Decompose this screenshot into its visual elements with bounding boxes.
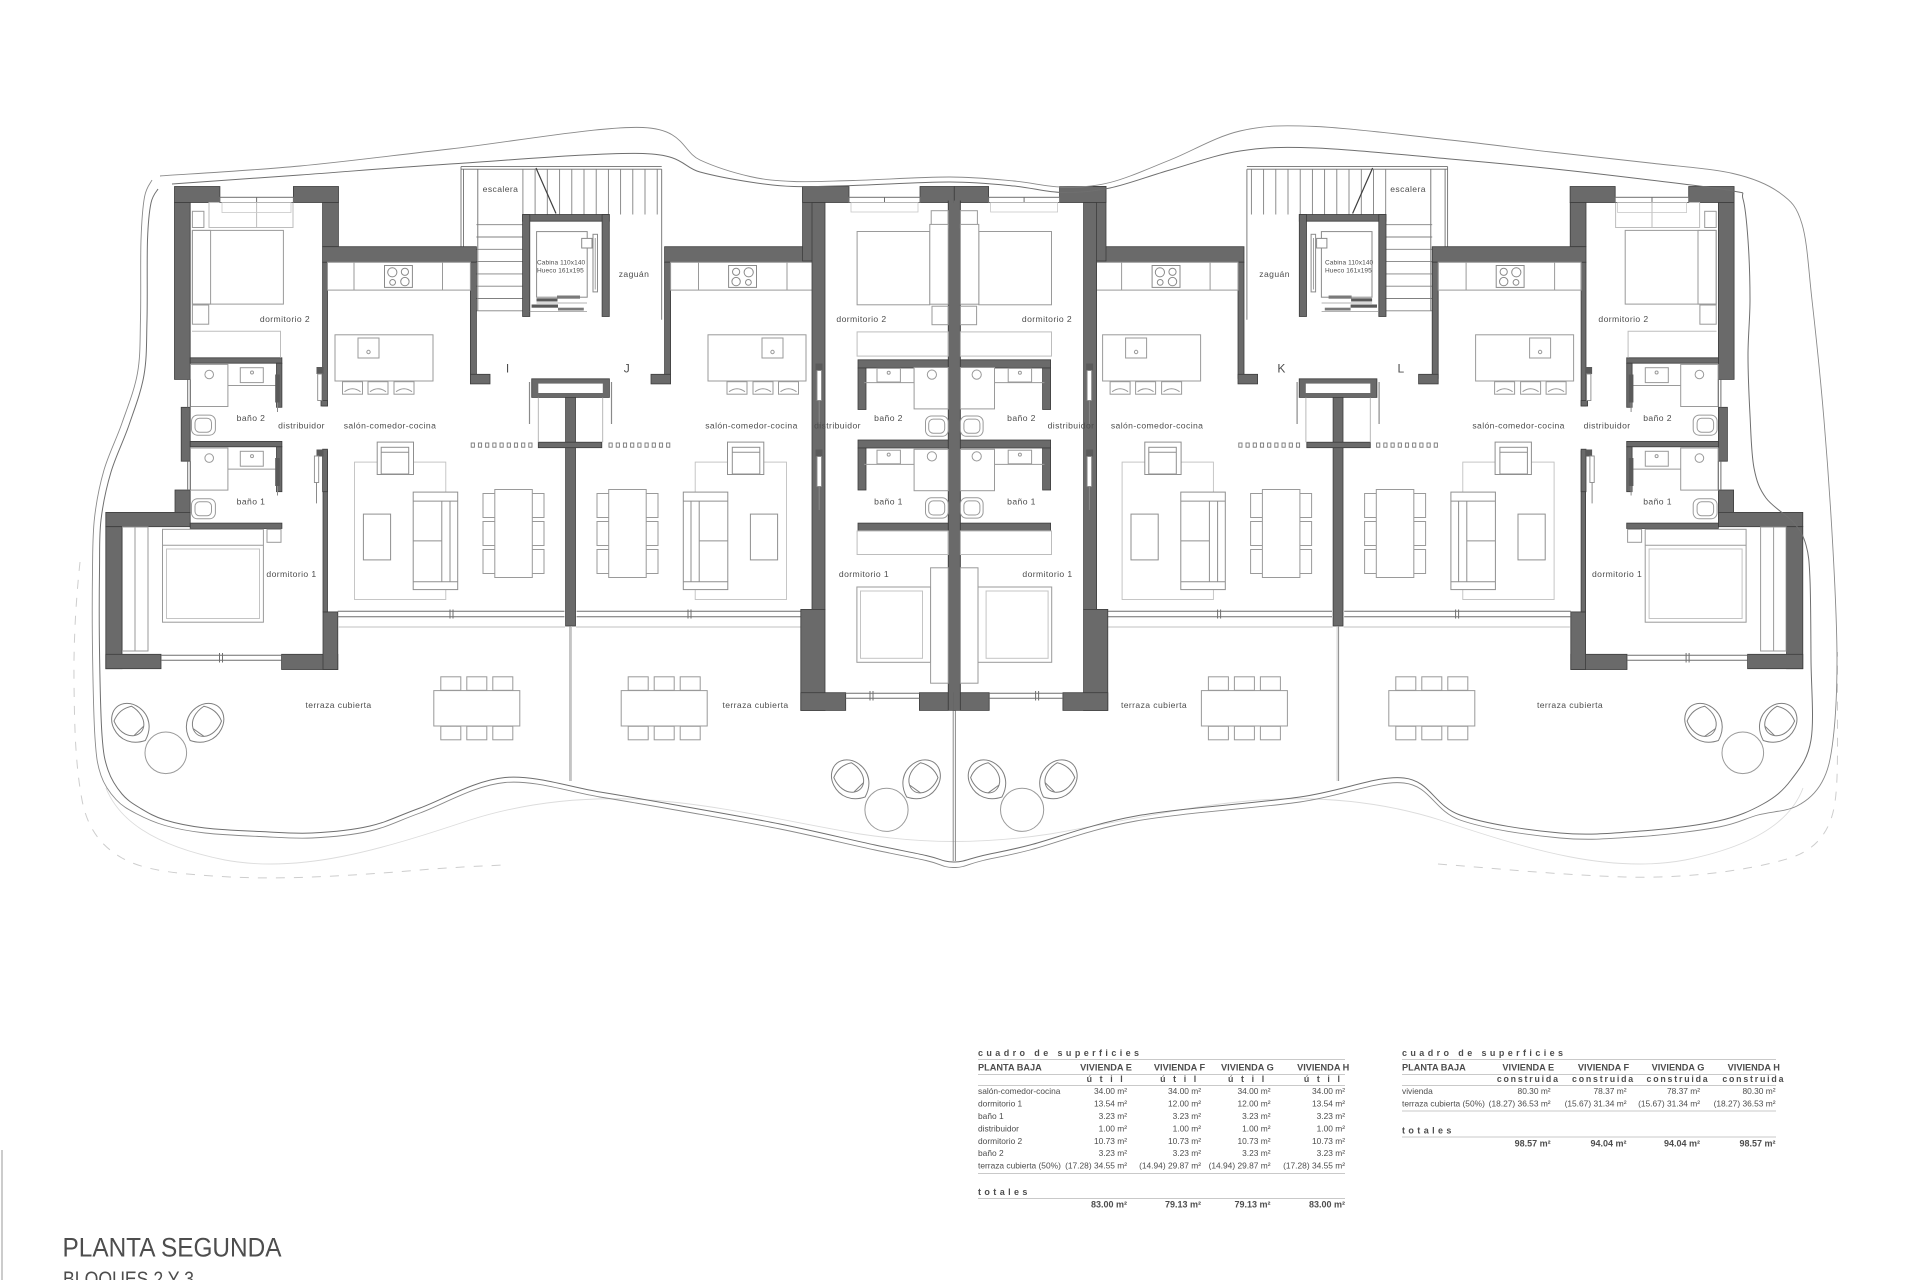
svg-text:10.73 m²: 10.73 m²	[1168, 1136, 1201, 1146]
svg-text:BLOQUES 2 Y 3: BLOQUES 2 Y 3	[63, 1268, 194, 1280]
svg-text:baño 1: baño 1	[237, 497, 266, 507]
svg-text:distribuidor: distribuidor	[814, 421, 861, 431]
svg-text:3.23 m²: 3.23 m²	[1242, 1111, 1271, 1121]
svg-text:zaguán: zaguán	[1259, 269, 1290, 279]
svg-text:escalera: escalera	[1390, 184, 1426, 194]
svg-text:10.73 m²: 10.73 m²	[1094, 1136, 1127, 1146]
svg-text:baño 1: baño 1	[874, 497, 903, 507]
svg-text:dormitorio 2: dormitorio 2	[260, 314, 310, 324]
svg-text:(15.67) 31.34 m²: (15.67) 31.34 m²	[1565, 1098, 1627, 1108]
svg-text:baño 2: baño 2	[978, 1148, 1004, 1158]
svg-text:VIVIENDA F: VIVIENDA F	[1578, 1063, 1630, 1073]
svg-text:terraza cubierta: terraza cubierta	[1121, 700, 1187, 710]
svg-text:34.00 m²: 34.00 m²	[1094, 1086, 1127, 1096]
svg-text:Hueco 161x195: Hueco 161x195	[1325, 268, 1372, 275]
svg-text:ú t i l: ú t i l	[1304, 1074, 1343, 1084]
svg-text:(15.67) 31.34 m²: (15.67) 31.34 m²	[1638, 1098, 1700, 1108]
svg-text:distribuidor: distribuidor	[1048, 421, 1095, 431]
svg-text:(14.94) 29.87 m²: (14.94) 29.87 m²	[1209, 1161, 1271, 1171]
svg-text:80.30 m²: 80.30 m²	[1742, 1086, 1775, 1096]
svg-text:I: I	[506, 362, 510, 376]
svg-text:94.04 m²: 94.04 m²	[1590, 1139, 1626, 1149]
svg-text:94.04 m²: 94.04 m²	[1664, 1139, 1700, 1149]
svg-text:dormitorio 1: dormitorio 1	[978, 1098, 1023, 1108]
svg-text:78.37 m²: 78.37 m²	[1667, 1086, 1700, 1096]
svg-text:3.23 m²: 3.23 m²	[1099, 1111, 1128, 1121]
svg-text:L: L	[1397, 362, 1404, 376]
svg-text:salón-comedor-cocina: salón-comedor-cocina	[344, 421, 437, 431]
svg-text:VIVIENDA E: VIVIENDA E	[1502, 1063, 1554, 1073]
svg-text:baño 1: baño 1	[1007, 497, 1036, 507]
svg-text:ú t i l: ú t i l	[1228, 1074, 1267, 1084]
svg-text:1.00 m²: 1.00 m²	[1173, 1124, 1202, 1134]
svg-text:3.23 m²: 3.23 m²	[1317, 1148, 1346, 1158]
svg-text:construida: construida	[1497, 1074, 1560, 1084]
svg-text:VIVIENDA H: VIVIENDA H	[1728, 1063, 1781, 1073]
svg-text:escalera: escalera	[483, 184, 519, 194]
svg-text:cuadro de superficies: cuadro de superficies	[1402, 1048, 1566, 1058]
svg-text:98.57 m²: 98.57 m²	[1739, 1139, 1775, 1149]
svg-text:VIVIENDA E: VIVIENDA E	[1080, 1063, 1132, 1073]
svg-text:(18.27) 36.53 m²: (18.27) 36.53 m²	[1714, 1098, 1776, 1108]
svg-text:VIVIENDA F: VIVIENDA F	[1154, 1063, 1206, 1073]
svg-text:(17.28) 34.55 m²: (17.28) 34.55 m²	[1065, 1161, 1127, 1171]
svg-text:Cabina 110x140: Cabina 110x140	[537, 260, 586, 267]
svg-text:construida: construida	[1647, 1074, 1710, 1084]
svg-text:13.54 m²: 13.54 m²	[1094, 1098, 1127, 1108]
svg-text:VIVIENDA H: VIVIENDA H	[1297, 1063, 1350, 1073]
svg-text:78.37 m²: 78.37 m²	[1593, 1086, 1626, 1096]
svg-text:terraza cubierta: terraza cubierta	[722, 700, 788, 710]
svg-text:34.00 m²: 34.00 m²	[1168, 1086, 1201, 1096]
svg-text:34.00 m²: 34.00 m²	[1237, 1086, 1270, 1096]
svg-text:ú t i l: ú t i l	[1160, 1074, 1199, 1084]
svg-text:12.00 m²: 12.00 m²	[1168, 1098, 1201, 1108]
svg-text:3.23 m²: 3.23 m²	[1242, 1148, 1271, 1158]
svg-text:terraza cubierta (50%): terraza cubierta (50%)	[978, 1161, 1061, 1171]
svg-text:baño 1: baño 1	[1643, 497, 1672, 507]
svg-text:PLANTA BAJA: PLANTA BAJA	[978, 1063, 1042, 1073]
svg-text:79.13 m²: 79.13 m²	[1165, 1200, 1201, 1210]
svg-text:salón-comedor-cocina: salón-comedor-cocina	[705, 421, 798, 431]
svg-text:80.30 m²: 80.30 m²	[1518, 1086, 1551, 1096]
svg-text:J: J	[624, 362, 630, 376]
svg-text:1.00 m²: 1.00 m²	[1317, 1124, 1346, 1134]
svg-text:distribuidor: distribuidor	[1584, 421, 1631, 431]
svg-text:baño 2: baño 2	[237, 413, 266, 423]
svg-text:Hueco 161x195: Hueco 161x195	[537, 268, 584, 275]
svg-text:dormitorio 1: dormitorio 1	[839, 569, 889, 579]
svg-text:dormitorio 2: dormitorio 2	[1598, 314, 1648, 324]
svg-text:3.23 m²: 3.23 m²	[1317, 1111, 1346, 1121]
svg-text:3.23 m²: 3.23 m²	[1099, 1148, 1128, 1158]
svg-text:K: K	[1277, 362, 1285, 376]
svg-text:Cabina 110x140: Cabina 110x140	[1325, 260, 1374, 267]
svg-text:ú t i l: ú t i l	[1087, 1074, 1126, 1084]
svg-text:distribuidor: distribuidor	[278, 421, 325, 431]
svg-text:VIVIENDA G: VIVIENDA G	[1652, 1063, 1705, 1073]
svg-text:salón-comedor-cocina: salón-comedor-cocina	[978, 1086, 1061, 1096]
svg-text:salón-comedor-cocina: salón-comedor-cocina	[1111, 421, 1204, 431]
svg-text:3.23 m²: 3.23 m²	[1173, 1111, 1202, 1121]
svg-text:(14.94) 29.87 m²: (14.94) 29.87 m²	[1139, 1161, 1201, 1171]
svg-text:dormitorio 1: dormitorio 1	[266, 569, 316, 579]
svg-text:baño 2: baño 2	[1007, 413, 1036, 423]
svg-text:34.00 m²: 34.00 m²	[1312, 1086, 1345, 1096]
svg-text:baño 1: baño 1	[978, 1111, 1004, 1121]
svg-text:terraza cubierta (50%): terraza cubierta (50%)	[1402, 1098, 1485, 1108]
svg-text:totales: totales	[1402, 1126, 1455, 1136]
svg-text:cuadro de superficies: cuadro de superficies	[978, 1048, 1142, 1058]
svg-text:10.73 m²: 10.73 m²	[1237, 1136, 1270, 1146]
svg-text:salón-comedor-cocina: salón-comedor-cocina	[1472, 421, 1565, 431]
svg-text:13.54 m²: 13.54 m²	[1312, 1098, 1345, 1108]
svg-text:12.00 m²: 12.00 m²	[1237, 1098, 1270, 1108]
svg-text:VIVIENDA G: VIVIENDA G	[1221, 1063, 1274, 1073]
svg-text:3.23 m²: 3.23 m²	[1173, 1148, 1202, 1158]
svg-text:(18.27) 36.53 m²: (18.27) 36.53 m²	[1489, 1098, 1551, 1108]
svg-text:1.00 m²: 1.00 m²	[1242, 1124, 1271, 1134]
svg-text:construida: construida	[1572, 1074, 1635, 1084]
svg-text:PLANTA SEGUNDA: PLANTA SEGUNDA	[63, 1233, 282, 1263]
svg-text:terraza cubierta: terraza cubierta	[305, 700, 371, 710]
svg-text:dormitorio 1: dormitorio 1	[1022, 569, 1072, 579]
svg-text:83.00 m²: 83.00 m²	[1309, 1200, 1345, 1210]
svg-text:distribuidor: distribuidor	[978, 1124, 1019, 1134]
svg-text:79.13 m²: 79.13 m²	[1234, 1200, 1270, 1210]
svg-text:PLANTA BAJA: PLANTA BAJA	[1402, 1063, 1466, 1073]
svg-text:98.57 m²: 98.57 m²	[1515, 1139, 1551, 1149]
svg-text:dormitorio 1: dormitorio 1	[1592, 569, 1642, 579]
svg-text:totales: totales	[978, 1187, 1031, 1197]
svg-text:vivienda: vivienda	[1402, 1086, 1433, 1096]
svg-text:dormitorio 2: dormitorio 2	[836, 314, 886, 324]
svg-text:dormitorio 2: dormitorio 2	[1022, 314, 1072, 324]
svg-text:zaguán: zaguán	[619, 269, 650, 279]
svg-text:83.00 m²: 83.00 m²	[1091, 1200, 1127, 1210]
svg-text:construida: construida	[1722, 1074, 1785, 1084]
svg-text:baño 2: baño 2	[1643, 413, 1672, 423]
svg-text:(17.28) 34.55 m²: (17.28) 34.55 m²	[1283, 1161, 1345, 1171]
svg-text:terraza cubierta: terraza cubierta	[1537, 700, 1603, 710]
svg-text:1.00 m²: 1.00 m²	[1099, 1124, 1128, 1134]
svg-text:baño 2: baño 2	[874, 413, 903, 423]
svg-text:10.73 m²: 10.73 m²	[1312, 1136, 1345, 1146]
svg-text:dormitorio 2: dormitorio 2	[978, 1136, 1023, 1146]
